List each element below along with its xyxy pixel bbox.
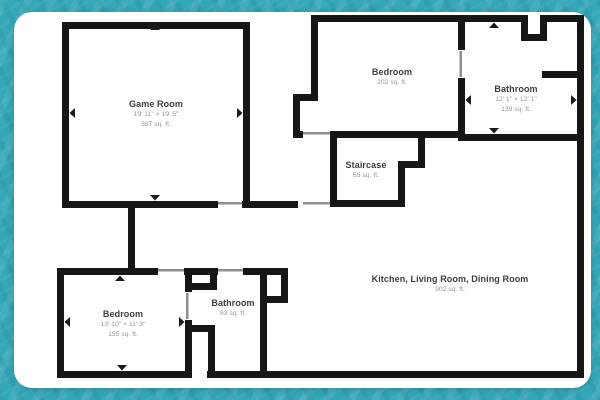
wall bbox=[542, 71, 584, 78]
door-line bbox=[303, 202, 330, 205]
door-line bbox=[303, 132, 330, 135]
door-line bbox=[460, 51, 463, 77]
walls bbox=[57, 15, 584, 378]
door-line bbox=[186, 293, 189, 319]
door-line bbox=[158, 269, 184, 272]
wall bbox=[210, 268, 217, 290]
wall bbox=[293, 131, 303, 138]
floor-plan-drawing bbox=[0, 0, 600, 400]
wall bbox=[128, 201, 135, 275]
dimension-arrow-right bbox=[571, 95, 577, 105]
dimension-arrows bbox=[65, 23, 577, 371]
wall bbox=[57, 371, 191, 378]
wall bbox=[208, 325, 215, 377]
wall bbox=[330, 200, 405, 207]
wall bbox=[311, 15, 465, 22]
dimension-arrow-left bbox=[65, 317, 71, 327]
dimension-arrow-left bbox=[70, 108, 76, 118]
wall bbox=[458, 78, 465, 138]
wall bbox=[62, 22, 69, 208]
door-line bbox=[218, 269, 243, 272]
door-openings bbox=[158, 51, 462, 319]
dimension-arrow-up bbox=[489, 23, 499, 29]
wall bbox=[330, 131, 465, 138]
wall bbox=[185, 268, 192, 292]
door-line bbox=[218, 202, 242, 205]
dimension-arrow-right bbox=[179, 317, 185, 327]
dimension-arrow-down bbox=[117, 365, 127, 371]
wall bbox=[458, 15, 528, 22]
wall bbox=[330, 131, 337, 207]
wall bbox=[62, 201, 218, 208]
dimension-arrow-up bbox=[115, 276, 125, 282]
dimension-arrow-left bbox=[466, 95, 472, 105]
wall bbox=[57, 268, 64, 378]
wall bbox=[458, 134, 584, 141]
wall bbox=[577, 15, 584, 378]
wall bbox=[260, 268, 267, 378]
dimension-arrow-down bbox=[489, 128, 499, 134]
wall bbox=[242, 201, 298, 208]
floor-plan-page: { "app": { "background_color": "#34a7b8"… bbox=[0, 0, 600, 400]
wall bbox=[260, 296, 288, 303]
dimension-arrow-down bbox=[150, 195, 160, 201]
wall bbox=[243, 22, 250, 208]
wall bbox=[311, 15, 318, 101]
dimension-arrow-right bbox=[237, 108, 243, 118]
wall bbox=[57, 268, 158, 275]
